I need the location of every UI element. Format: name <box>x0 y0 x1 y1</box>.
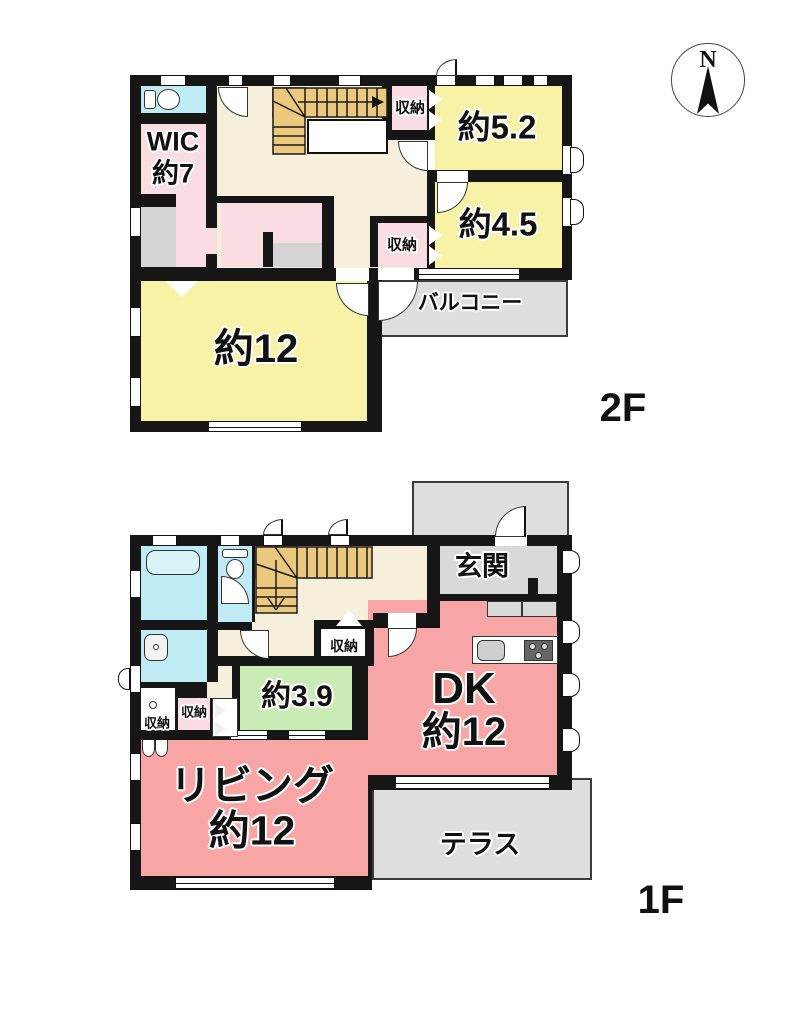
wall-segment <box>263 232 273 267</box>
casement-window <box>562 620 580 644</box>
door-opening <box>336 268 369 281</box>
burner-icon <box>529 643 536 650</box>
window <box>220 535 240 546</box>
toilet-icon <box>222 549 248 558</box>
label-balcony: バルコニー <box>418 293 523 314</box>
window <box>228 75 243 86</box>
door-opening <box>437 171 468 182</box>
sliding-door <box>288 730 326 740</box>
casement-window <box>118 668 130 690</box>
wall-segment <box>427 546 440 620</box>
compass-north-label: N <box>699 48 716 72</box>
window <box>475 75 495 86</box>
window <box>338 75 361 86</box>
wall-segment <box>207 656 365 666</box>
window <box>130 823 141 851</box>
burner-icon <box>535 652 542 659</box>
window <box>160 75 186 86</box>
window <box>330 535 350 546</box>
casement-window <box>570 199 584 225</box>
label-room-3-9: 約3.9 <box>261 682 333 712</box>
toilet-icon <box>226 559 244 579</box>
casement-window-arc <box>328 519 348 535</box>
staircase-2f <box>272 87 388 155</box>
label-room-12-2f: 約12 <box>214 329 299 369</box>
window <box>130 307 141 337</box>
floorplan-canvas: N <box>0 0 791 1024</box>
label-storage-mid: 収納 <box>387 238 417 253</box>
window <box>395 776 550 789</box>
wall-segment <box>141 194 176 207</box>
wic-room <box>176 194 206 267</box>
closet-door-arc <box>142 740 155 757</box>
door-opening <box>378 268 414 280</box>
label-terrace: テラス <box>440 832 520 859</box>
window <box>130 665 141 693</box>
label-entrance: 玄関 <box>455 554 509 581</box>
faucet-icon <box>153 644 159 650</box>
closet-door-arc <box>155 740 168 757</box>
label-storage-closet: 収納 <box>144 717 170 730</box>
burner-icon <box>541 643 548 650</box>
window <box>175 877 335 889</box>
label-floor-1f: 1F <box>638 880 685 920</box>
toilet-icon <box>157 89 180 110</box>
toilet-icon <box>144 90 156 109</box>
wall-segment <box>365 628 373 666</box>
bathtub-icon <box>146 550 200 575</box>
window <box>503 75 523 86</box>
label-room-5-2: 約5.2 <box>458 111 537 144</box>
label-storage-top: 収納 <box>395 101 425 116</box>
casement-window <box>570 147 584 173</box>
wall-segment <box>322 196 334 280</box>
label-wic: WIC <box>147 129 199 156</box>
wall-segment <box>528 578 538 594</box>
label-living: リビング <box>170 766 334 807</box>
window <box>208 421 302 432</box>
window <box>130 377 141 407</box>
label-wic-size: 約7 <box>152 161 194 188</box>
wall-segment <box>218 622 252 630</box>
label-storage-pink: 収納 <box>181 706 207 719</box>
label-floor-2f: 2F <box>600 388 647 428</box>
wall-segment <box>427 594 557 601</box>
wall-segment <box>370 216 427 223</box>
label-room-4-5: 約4.5 <box>459 208 538 241</box>
entrance-step-divider <box>521 601 523 617</box>
window <box>152 535 177 546</box>
window <box>263 535 283 546</box>
window <box>130 570 141 598</box>
casement-window-arc <box>436 59 457 76</box>
door-knob-icon <box>149 701 157 709</box>
label-dk: DK <box>432 667 496 711</box>
staircase-1f <box>255 546 373 614</box>
casement-window-arc <box>263 519 283 535</box>
window <box>418 268 520 280</box>
entrance-porch <box>412 481 569 538</box>
closet-2f <box>141 207 176 267</box>
label-living-size: 約12 <box>209 811 296 852</box>
casement-window <box>562 673 580 697</box>
label-dk-size: 約12 <box>422 712 507 752</box>
door-opening <box>427 140 435 170</box>
casement-window <box>562 550 580 574</box>
door-opening <box>388 613 416 628</box>
kitchen-sink-icon <box>477 640 505 661</box>
window <box>273 75 291 86</box>
wall-segment <box>370 223 378 267</box>
casement-window <box>562 728 580 752</box>
window <box>130 207 141 237</box>
window <box>130 753 141 781</box>
wall-segment <box>217 196 322 203</box>
wall-segment <box>352 666 368 730</box>
wall-opening <box>206 228 217 254</box>
closet-2f <box>273 243 322 267</box>
wall-segment <box>392 130 435 140</box>
wall-segment <box>141 113 206 124</box>
window <box>533 75 548 86</box>
label-storage-hall: 収納 <box>330 639 358 653</box>
window <box>436 75 456 86</box>
wall-segment <box>175 688 178 740</box>
